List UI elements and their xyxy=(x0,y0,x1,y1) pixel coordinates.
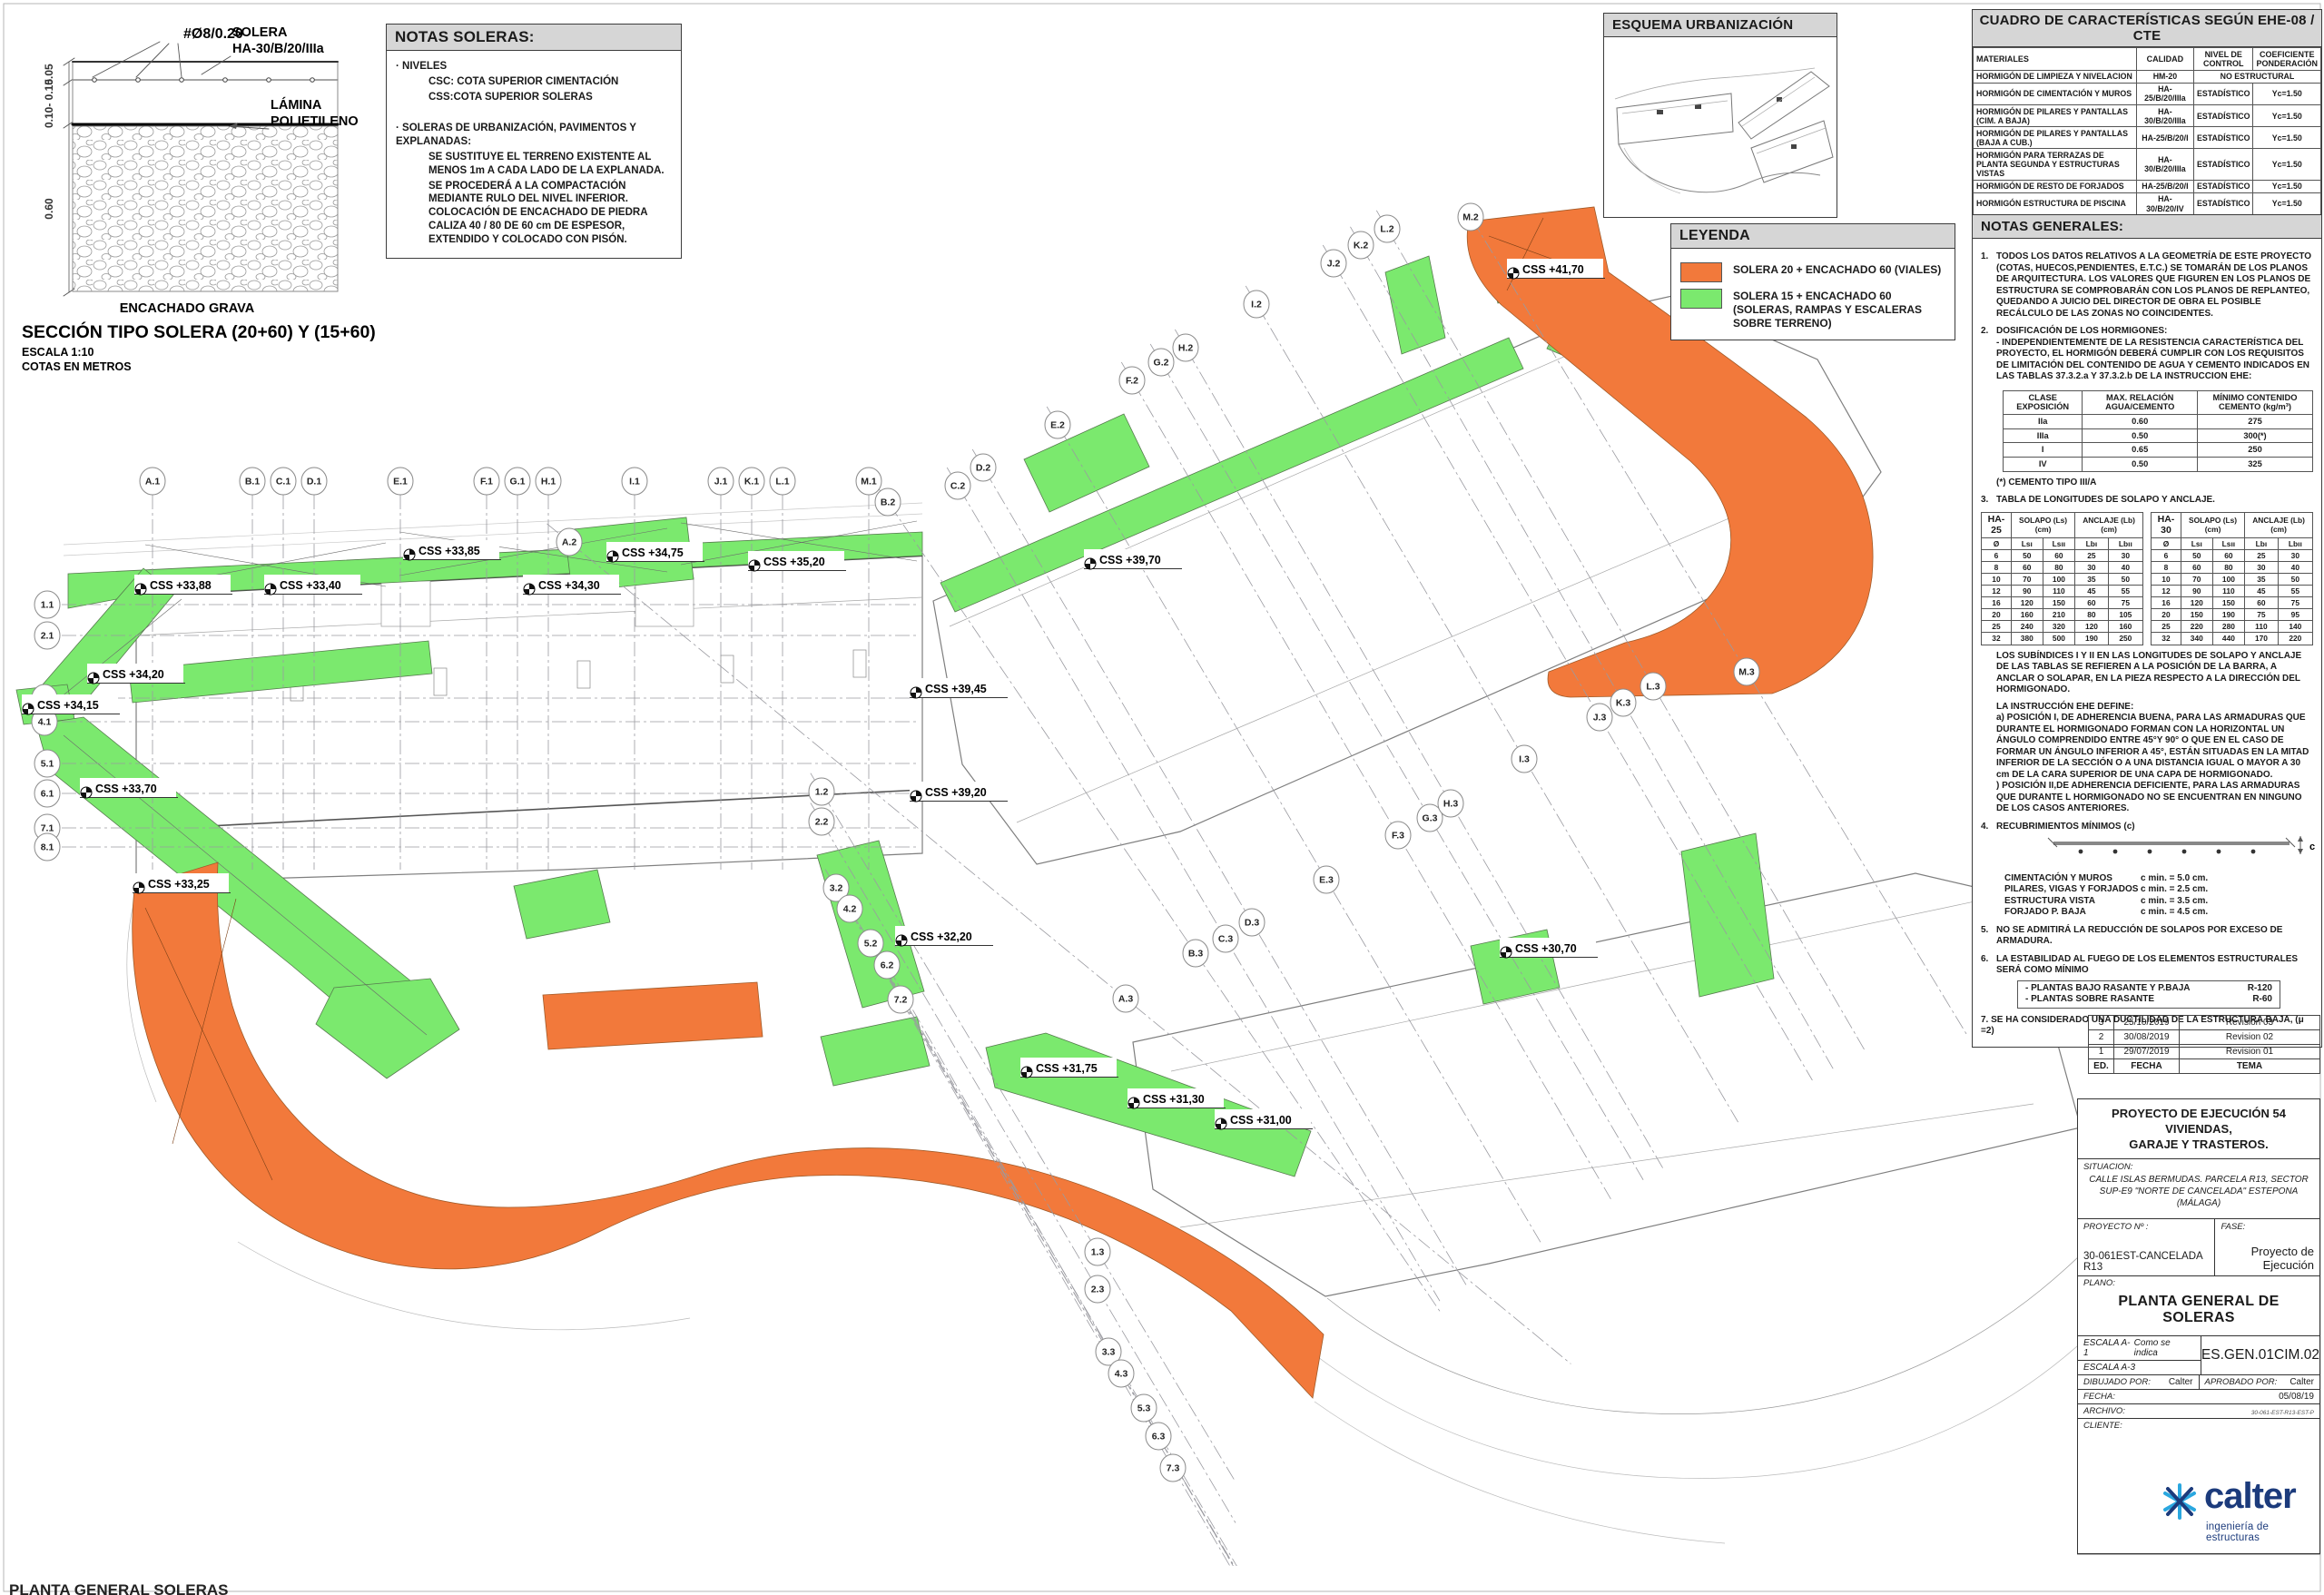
legend-swatch xyxy=(1680,289,1722,309)
section-scale: ESCALA 1:10 xyxy=(22,346,94,359)
css-elevation-label: CSS +39,45 xyxy=(910,678,1008,698)
css-elevation-label: CSS +34,15 xyxy=(22,694,120,714)
notas-soleras-line: CSS:COTA SUPERIOR SOLERAS xyxy=(428,91,672,104)
svg-text:2.2: 2.2 xyxy=(815,817,829,828)
svg-text:D.3: D.3 xyxy=(1245,918,1260,929)
revision-header: ED.FECHATEMA xyxy=(2089,1059,2320,1074)
subindices-note: LOS SUBÍNDICES I Y II EN LAS LONGITUDES … xyxy=(1996,651,2313,696)
esquema-minimap xyxy=(1604,37,1835,212)
solapo-row: 25220280110140 xyxy=(2152,621,2313,633)
cuadro-row: HORMIGÓN DE RESTO DE FORJADOSHA-25/B/20/… xyxy=(1974,180,2321,192)
ehe-define: LA INSTRUCCIÓN EHE DEFINE: a) POSICIÓN I… xyxy=(1996,702,2313,815)
solapo-row: 32380500190250 xyxy=(1982,633,2143,645)
situacion-block: SITUACION: CALLE ISLAS BERMUDAS. PARCELA… xyxy=(2078,1159,2319,1219)
grid-bubble: 4.2 xyxy=(837,895,862,922)
esquema-urbanizacion-panel: ESQUEMA URBANIZACIÓN xyxy=(1603,13,1837,218)
svg-text:A.1: A.1 xyxy=(145,477,161,487)
cuadro-row: HORMIGÓN PARA TERRAZAS DE PLANTA SEGUNDA… xyxy=(1974,149,2321,180)
project-title: PROYECTO DE EJECUCIÓN 54 VIVIENDAS,GARAJ… xyxy=(2078,1099,2319,1159)
grid-bubble: F.2 xyxy=(1119,367,1145,394)
svg-text:6.1: 6.1 xyxy=(41,789,54,800)
svg-text:1.2: 1.2 xyxy=(815,787,829,798)
grid-bubble: 2.3 xyxy=(1085,1275,1110,1303)
grid-bubble: 8.1 xyxy=(34,833,60,861)
plano-name: PLANTA GENERAL DE SOLERAS xyxy=(2083,1294,2314,1326)
fuego-table: - PLANTAS BAJO RASANTE Y P.BAJAR-120- PL… xyxy=(2017,980,2280,1009)
svg-text:I.3: I.3 xyxy=(1519,754,1530,765)
css-elevation-label: CSS +39,20 xyxy=(910,782,1008,802)
grid-bubble: K.3 xyxy=(1610,689,1636,716)
escala-cell: ESCALA A-1Como se indica ESCALA A-3 xyxy=(2078,1336,2201,1374)
grid-bubble: C.3 xyxy=(1213,925,1238,952)
grid-bubble: H.1 xyxy=(536,468,561,495)
grid-bubble: 5.3 xyxy=(1131,1394,1157,1422)
svg-text:CSS +32,20: CSS +32,20 xyxy=(911,930,972,943)
css-elevation-label: CSS +33,70 xyxy=(80,778,178,798)
esquema-title: ESQUEMA URBANIZACIÓN xyxy=(1604,14,1837,37)
css-elevation-label: CSS +33,40 xyxy=(264,575,362,595)
recubrimiento-row: PILARES, VIGAS Y FORJADOSc min. = 2.5 cm… xyxy=(2004,884,2313,896)
svg-text:7.2: 7.2 xyxy=(894,995,908,1006)
cuadro-header-row: MATERIALES CALIDAD NIVEL DE CONTROL COEF… xyxy=(1974,48,2321,71)
css-elevation-label: CSS +33,88 xyxy=(134,575,232,595)
grid-bubble: E.1 xyxy=(388,468,413,495)
cuadro-row: HORMIGÓN DE PILARES Y PANTALLAS (CIM. A … xyxy=(1974,105,2321,127)
fecha-cell: FECHA:05/08/19 xyxy=(2078,1390,2319,1403)
dibujado-cell: DIBUJADO POR:Calter xyxy=(2078,1375,2199,1389)
svg-text:G.3: G.3 xyxy=(1423,813,1438,824)
svg-text:CSS +34,75: CSS +34,75 xyxy=(622,546,684,559)
css-elevation-label: CSS +31,30 xyxy=(1128,1088,1226,1108)
cuadro-row: HORMIGÓN DE PILARES Y PANTALLAS (BAJA A … xyxy=(1974,127,2321,149)
svg-text:CSS +39,20: CSS +39,20 xyxy=(925,786,987,799)
solapo-row: 650602530 xyxy=(2152,549,2313,561)
grid-bubble: E.3 xyxy=(1314,866,1339,893)
calter-star-icon xyxy=(2159,1480,2201,1523)
svg-text:4.1: 4.1 xyxy=(38,717,52,728)
svg-text:F.2: F.2 xyxy=(1126,376,1138,387)
nota-item-3: 3. TABLA DE LONGITUDES DE SOLAPO Y ANCLA… xyxy=(1981,495,2313,507)
drawing-code: ES.GEN.01CIM.02 xyxy=(2201,1336,2319,1374)
solapo-row: 161201506075 xyxy=(2152,597,2313,609)
svg-text:G.1: G.1 xyxy=(510,477,526,487)
grid-bubble: 6.3 xyxy=(1146,1423,1171,1450)
svg-text:C.2: C.2 xyxy=(950,481,966,492)
recubrimiento-diagram: c xyxy=(2035,832,2324,865)
exp-row: IIa0.60275 xyxy=(2004,414,2313,428)
css-elevation-label: CSS +32,20 xyxy=(895,926,993,946)
grid-bubble: J.1 xyxy=(708,468,734,495)
svg-text:1.3: 1.3 xyxy=(1091,1247,1105,1258)
notas-soleras-title: NOTAS SOLERAS: xyxy=(387,25,681,51)
grid-bubble: J.3 xyxy=(1587,704,1612,731)
notas-soleras-panel: NOTAS SOLERAS: · NIVELESCSC: COTA SUPERI… xyxy=(386,24,682,259)
svg-text:K.1: K.1 xyxy=(744,477,760,487)
svg-text:J.2: J.2 xyxy=(1327,259,1341,270)
revision-row: 230/08/2019Revision 02 xyxy=(2089,1030,2320,1045)
svg-text:CSS +33,85: CSS +33,85 xyxy=(419,545,480,557)
svg-text:M.1: M.1 xyxy=(861,477,877,487)
svg-text:POLIETILENO: POLIETILENO xyxy=(271,114,359,129)
svg-text:C.1: C.1 xyxy=(276,477,291,487)
solapo-row: 12901104555 xyxy=(1982,586,2143,597)
svg-text:H.3: H.3 xyxy=(1443,799,1459,810)
leyenda-title: LEYENDA xyxy=(1671,224,1955,249)
fase-cell: FASE: Proyecto deEjecución xyxy=(2215,1219,2319,1275)
recubrimiento-row: ESTRUCTURA VISTAc min. = 3.5 cm. xyxy=(2004,896,2313,908)
svg-text:CSS +31,75: CSS +31,75 xyxy=(1036,1062,1098,1075)
svg-text:6.3: 6.3 xyxy=(1152,1432,1166,1442)
nota-item-2: 2. DOSIFICACIÓN DE LOS HORMIGONES:- INDE… xyxy=(1981,326,2313,383)
recubrimiento-row: FORJADO P. BAJAc min. = 4.5 cm. xyxy=(2004,907,2313,919)
nota-item-6: 6. LA ESTABILIDAD AL FUEGO DE LOS ELEMEN… xyxy=(1981,954,2313,977)
css-elevation-label: CSS +31,00 xyxy=(1215,1109,1313,1129)
css-elevation-label: CSS +34,30 xyxy=(523,575,621,595)
revision-row: 129/07/2019Revision 01 xyxy=(2089,1045,2320,1059)
logo-tagline: ingeniería de estructuras xyxy=(2206,1521,2322,1543)
legend-swatch xyxy=(1680,262,1722,282)
grid-bubble: L.2 xyxy=(1374,215,1400,242)
sheet-corner-text: PLANTA GENERAL SOLERAS xyxy=(9,1581,228,1595)
svg-text:8.1: 8.1 xyxy=(41,842,54,853)
grid-bubble: B.3 xyxy=(1183,940,1208,967)
grid-bubble: 6.1 xyxy=(34,780,60,807)
grid-bubble: 2.2 xyxy=(809,808,834,835)
exposicion-table: CLASE EXPOSICIÓNMAX. RELACIÓN AGUA/CEMEN… xyxy=(2003,390,2313,472)
svg-text:J.1: J.1 xyxy=(714,477,728,487)
svg-text:CSS +33,25: CSS +33,25 xyxy=(148,878,210,891)
svg-text:CSS +41,70: CSS +41,70 xyxy=(1522,263,1584,276)
solapo-row: 10701003550 xyxy=(1982,574,2143,586)
solapo-tables: HA-25SOLAPO (Ls) (cm)ANCLAJE (Lb) (cm)ØL… xyxy=(1981,512,2313,645)
grid-bubble: A.3 xyxy=(1113,985,1138,1012)
svg-text:B.3: B.3 xyxy=(1188,949,1204,960)
svg-text:CSS +34,15: CSS +34,15 xyxy=(37,699,99,712)
svg-text:L.1: L.1 xyxy=(775,477,789,487)
svg-text:G.2: G.2 xyxy=(1154,358,1169,369)
solapo-row: 201501907595 xyxy=(2152,609,2313,621)
notas-soleras-line: SE PROCEDERÁ A LA COMPACTACIÓN MEDIANTE … xyxy=(428,180,672,248)
grid-bubble: I.1 xyxy=(622,468,647,495)
grid-bubble: F.1 xyxy=(474,468,499,495)
grid-bubble: C.2 xyxy=(945,472,970,499)
grid-bubble: J.2 xyxy=(1321,250,1346,277)
archivo-cell: ARCHIVO:30-061-EST-R13-EST-P xyxy=(2078,1404,2319,1418)
grid-bubble: K.2 xyxy=(1348,231,1374,259)
css-elevation-label: CSS +34,75 xyxy=(606,542,704,562)
building-block-3 xyxy=(1133,873,2081,1296)
svg-text:CSS +35,20: CSS +35,20 xyxy=(763,556,825,568)
grid-bubble: 1.3 xyxy=(1085,1238,1110,1265)
svg-text:H.2: H.2 xyxy=(1178,343,1194,354)
grid-bubble: G.1 xyxy=(505,468,530,495)
cuadro-row: HORMIGÓN ESTRUCTURA DE PISCINAHA-30/B/20… xyxy=(1974,192,2321,214)
leyenda-panel: LEYENDA SOLERA 20 + ENCACHADO 60 (VIALES… xyxy=(1670,223,1955,340)
solapo-row: 2016021080105 xyxy=(1982,609,2143,621)
svg-text:3.3: 3.3 xyxy=(1102,1347,1116,1358)
notas-generales-panel: NOTAS GENERALES: 1. TODOS LOS DATOS RELA… xyxy=(1972,214,2322,1048)
grid-bubble: I.2 xyxy=(1244,290,1269,318)
solapo-table-ha30: HA-30SOLAPO (Ls) (cm)ANCLAJE (Lb) (cm)ØL… xyxy=(2151,512,2313,645)
grid-bubble: 5.1 xyxy=(34,750,60,777)
solapo-row: 161201506075 xyxy=(1982,597,2143,609)
grid-bubble: M.3 xyxy=(1734,658,1759,685)
aprobado-cell: APROBADO POR:Calter xyxy=(2199,1375,2320,1389)
solapo-row: 650602530 xyxy=(1982,549,2143,561)
nota-item-4: 4. RECUBRIMIENTOS MÍNIMOS (c) xyxy=(1981,822,2313,833)
dim-label: 0.10- 0.15 xyxy=(43,79,55,128)
grid-bubble: 1.1 xyxy=(34,591,60,618)
svg-text:K.3: K.3 xyxy=(1616,698,1631,709)
revision-table: 325/10/2019Revisión 03230/08/2019Revisio… xyxy=(2088,1015,2320,1074)
leyenda-body: SOLERA 20 + ENCACHADO 60 (VIALES)SOLERA … xyxy=(1671,249,1955,340)
grid-bubble: A.1 xyxy=(140,468,165,495)
solapo-row: 860803040 xyxy=(2152,561,2313,573)
nota-item-5: 5. NO SE ADMITIRÁ LA REDUCCIÓN DE SOLAPO… xyxy=(1981,925,2313,948)
svg-text:E.1: E.1 xyxy=(393,477,408,487)
svg-text:CSS +31,30: CSS +31,30 xyxy=(1143,1093,1205,1106)
svg-text:CSS +39,45: CSS +39,45 xyxy=(925,683,987,695)
grid-bubble: 7.2 xyxy=(888,986,913,1013)
cemento-note: (*) CEMENTO TIPO III/A xyxy=(1996,478,2313,489)
svg-text:K.2: K.2 xyxy=(1354,241,1369,251)
grid-bubble: D.2 xyxy=(970,454,996,481)
svg-text:CSS +31,00: CSS +31,00 xyxy=(1230,1114,1292,1127)
svg-text:D.2: D.2 xyxy=(976,463,991,474)
svg-text:M.2: M.2 xyxy=(1462,212,1479,223)
section-units: COTAS EN METROS xyxy=(22,360,132,373)
svg-text:E.2: E.2 xyxy=(1050,420,1065,431)
svg-text:5.1: 5.1 xyxy=(41,759,54,770)
svg-text:CSS +33,88: CSS +33,88 xyxy=(150,579,212,592)
legend-item: SOLERA 20 + ENCACHADO 60 (VIALES) xyxy=(1680,262,1945,282)
cuadro-row: HORMIGÓN DE CIMENTACIÓN Y MUROSHA-25/B/2… xyxy=(1974,83,2321,104)
svg-text:3.2: 3.2 xyxy=(830,883,843,894)
svg-text:CSS +33,40: CSS +33,40 xyxy=(280,579,341,592)
fuego-row: - PLANTAS BAJO RASANTE Y P.BAJAR-120 xyxy=(2025,983,2272,995)
grid-bubble: 4.3 xyxy=(1108,1360,1134,1387)
svg-text:2.1: 2.1 xyxy=(41,631,54,642)
notas-soleras-line: CSC: COTA SUPERIOR CIMENTACIÓN xyxy=(428,75,672,89)
notas-soleras-line: · SOLERAS DE URBANIZACIÓN, PAVIMENTOS Y … xyxy=(396,122,672,149)
solapo-row: 860803040 xyxy=(1982,561,2143,573)
grid-bubble: D.3 xyxy=(1239,909,1265,936)
svg-text:CSS +30,70: CSS +30,70 xyxy=(1515,942,1577,955)
notas-generales-title: NOTAS GENERALES: xyxy=(1973,215,2321,239)
svg-text:4.2: 4.2 xyxy=(843,904,857,915)
nota-item-1: 1. TODOS LOS DATOS RELATIVOS A LA GEOMET… xyxy=(1981,251,2313,320)
proyecto-num-cell: PROYECTO Nº : 30-061EST-CANCELADA R13 xyxy=(2078,1219,2215,1275)
css-elevation-label: CSS +35,20 xyxy=(748,551,846,571)
exp-row: I0.65250 xyxy=(2004,443,2313,458)
notas-soleras-line xyxy=(396,106,672,120)
calter-logo: calter ingeniería de estructuras xyxy=(2159,1480,2322,1543)
grid-bubble: F.3 xyxy=(1385,822,1411,849)
solapo-table-ha25: HA-25SOLAPO (Ls) (cm)ANCLAJE (Lb) (cm)ØL… xyxy=(1981,512,2143,645)
svg-text:c: c xyxy=(2309,842,2315,852)
svg-text:CSS +39,70: CSS +39,70 xyxy=(1099,554,1161,566)
grid-bubble: L.1 xyxy=(770,468,795,495)
recubrimiento-row: CIMENTACIÓN Y MUROSc min. = 5.0 cm. xyxy=(2004,873,2313,885)
grid-bubble: G.2 xyxy=(1148,349,1174,376)
cuadro-title: CUADRO DE CARACTERÍSTICAS SEGÚN EHE-08 /… xyxy=(1973,10,2321,47)
svg-text:I.2: I.2 xyxy=(1251,300,1262,310)
svg-text:I.1: I.1 xyxy=(629,477,640,487)
recubrimientos-list: CIMENTACIÓN Y MUROSc min. = 5.0 cm.PILAR… xyxy=(2004,873,2313,919)
svg-text:F.1: F.1 xyxy=(480,477,493,487)
fuego-row: - PLANTAS SOBRE RASANTER-60 xyxy=(2025,994,2272,1006)
cliente-cell: CLIENTE: xyxy=(2078,1419,2319,1433)
dim-label: 0.60 xyxy=(43,198,55,220)
svg-text:1.1: 1.1 xyxy=(41,600,54,611)
svg-text:CSS +34,30: CSS +34,30 xyxy=(538,579,600,592)
css-elevation-label: CSS +39,70 xyxy=(1084,549,1182,569)
grid-bubble: H.2 xyxy=(1173,334,1198,361)
solera-label: SOLERA xyxy=(232,25,288,40)
grid-bubble: 6.2 xyxy=(874,951,900,979)
grid-bubble: K.1 xyxy=(739,468,764,495)
solapo-row: 25240320120160 xyxy=(1982,621,2143,633)
svg-text:CSS +34,20: CSS +34,20 xyxy=(103,668,164,681)
section-detail: 0.05 0.10- 0.15 0.60 #Ø8/0.20 SOLERA HA-… xyxy=(22,25,376,373)
svg-text:H.1: H.1 xyxy=(541,477,556,487)
css-elevation-label: CSS +30,70 xyxy=(1500,938,1598,958)
grid-bubble: M.2 xyxy=(1458,203,1483,231)
logo-name: calter xyxy=(2204,1480,2296,1512)
svg-text:J.3: J.3 xyxy=(1593,713,1607,724)
cuadro-row: HORMIGÓN DE LIMPIEZA Y NIVELACIONHM-20NO… xyxy=(1974,70,2321,83)
grid-bubble: L.3 xyxy=(1640,673,1666,700)
css-elevation-label: CSS +41,70 xyxy=(1507,259,1605,279)
grid-bubble: D.1 xyxy=(301,468,327,495)
svg-text:5.2: 5.2 xyxy=(864,939,878,950)
solapo-row: 32340440170220 xyxy=(2152,633,2313,645)
drawing-sheet: 0.05 0.10- 0.15 0.60 #Ø8/0.20 SOLERA HA-… xyxy=(0,0,2324,1595)
grid-bubble: 1.2 xyxy=(809,778,834,805)
notas-soleras-line: · NIVELES xyxy=(396,60,672,74)
grid-bubble: A.2 xyxy=(556,528,582,556)
svg-text:B.2: B.2 xyxy=(881,497,896,508)
encachado-label: ENCACHADO GRAVA xyxy=(120,301,255,316)
svg-text:7.1: 7.1 xyxy=(41,823,54,834)
svg-text:C.3: C.3 xyxy=(1218,934,1234,945)
solapo-row: 10701003550 xyxy=(2152,574,2313,586)
css-elevation-label: CSS +31,75 xyxy=(1020,1058,1118,1078)
svg-text:M.3: M.3 xyxy=(1738,667,1755,678)
svg-text:HA-30/B/20/IIIa: HA-30/B/20/IIIa xyxy=(232,42,325,56)
solapo-row: 12901104555 xyxy=(2152,586,2313,597)
grid-bubble: 2.1 xyxy=(34,622,60,649)
svg-text:6.2: 6.2 xyxy=(881,960,894,971)
grid-bubble: 5.2 xyxy=(858,930,883,957)
grid-bubble: B.2 xyxy=(875,488,901,516)
svg-text:F.3: F.3 xyxy=(1392,831,1404,842)
css-elevation-label: CSS +33,25 xyxy=(133,873,231,893)
svg-text:E.3: E.3 xyxy=(1319,875,1334,886)
svg-text:4.3: 4.3 xyxy=(1115,1369,1128,1380)
exp-row: IV0.50325 xyxy=(2004,457,2313,471)
svg-text:5.3: 5.3 xyxy=(1137,1403,1151,1414)
svg-text:B.1: B.1 xyxy=(245,477,261,487)
grid-bubble: M.1 xyxy=(856,468,881,495)
notas-soleras-body: · NIVELESCSC: COTA SUPERIOR CIMENTACIÓNC… xyxy=(387,51,681,258)
gravel-layer xyxy=(73,126,338,291)
svg-text:A.2: A.2 xyxy=(562,537,577,548)
revision-row: 325/10/2019Revisión 03 xyxy=(2089,1016,2320,1030)
svg-text:CSS +33,70: CSS +33,70 xyxy=(95,783,157,795)
grid-bubble: B.1 xyxy=(240,468,265,495)
exp-header: CLASE EXPOSICIÓNMAX. RELACIÓN AGUA/CEMEN… xyxy=(2004,390,2313,414)
svg-text:D.1: D.1 xyxy=(307,477,322,487)
section-title: SECCIÓN TIPO SOLERA (20+60) Y (15+60) xyxy=(22,320,376,342)
svg-text:L.2: L.2 xyxy=(1380,224,1393,235)
svg-text:L.3: L.3 xyxy=(1646,682,1659,693)
lamina-label: LÁMINA xyxy=(271,97,322,113)
plano-cell: PLANO: PLANTA GENERAL DE SOLERAS xyxy=(2078,1276,2319,1336)
css-elevation-label: CSS +34,20 xyxy=(87,664,185,684)
grid-bubble: 7.3 xyxy=(1160,1454,1186,1482)
css-elevation-label: CSS +33,85 xyxy=(403,540,501,560)
grid-bubble: C.1 xyxy=(271,468,296,495)
svg-text:2.3: 2.3 xyxy=(1091,1285,1105,1295)
notas-soleras-line: SE SUSTITUYE EL TERRENO EXISTENTE AL MEN… xyxy=(428,151,672,178)
grid-bubble: I.3 xyxy=(1512,745,1537,773)
exp-row: IIIa0.50300(*) xyxy=(2004,428,2313,443)
grid-bubble: E.2 xyxy=(1045,411,1070,438)
grid-bubble: H.3 xyxy=(1438,790,1463,817)
legend-item: SOLERA 15 + ENCACHADO 60 (SOLERAS, RAMPA… xyxy=(1680,289,1945,330)
svg-text:A.3: A.3 xyxy=(1118,994,1134,1005)
svg-text:7.3: 7.3 xyxy=(1167,1463,1180,1474)
